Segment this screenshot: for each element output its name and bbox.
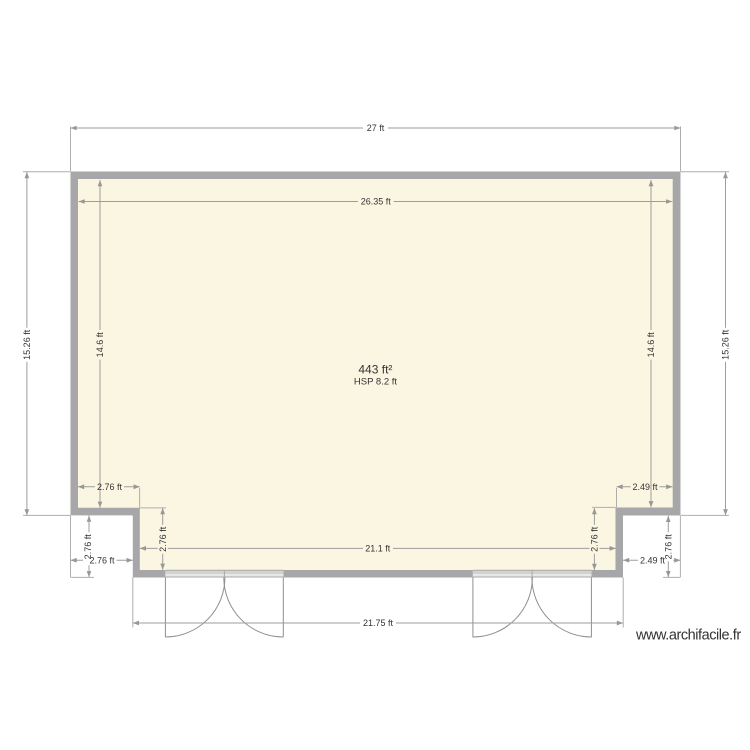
svg-text:27 ft: 27 ft: [367, 123, 385, 133]
svg-text:443 ft²: 443 ft²: [358, 362, 392, 376]
svg-text:14.6 ft: 14.6 ft: [646, 332, 656, 358]
svg-text:2.76 ft: 2.76 ft: [89, 555, 115, 565]
svg-text:2.76 ft: 2.76 ft: [664, 534, 674, 560]
svg-text:2.76 ft: 2.76 ft: [83, 534, 93, 560]
svg-text:2.76 ft: 2.76 ft: [590, 526, 600, 552]
svg-text:2.76 ft: 2.76 ft: [97, 482, 123, 492]
svg-text:21.75 ft: 21.75 ft: [363, 618, 394, 628]
svg-text:HSP 8.2 ft: HSP 8.2 ft: [354, 377, 397, 388]
svg-text:14.6 ft: 14.6 ft: [95, 332, 105, 358]
svg-text:15.26 ft: 15.26 ft: [721, 329, 731, 360]
svg-text:2.49 ft: 2.49 ft: [640, 555, 666, 565]
svg-text:21.1 ft: 21.1 ft: [365, 544, 391, 554]
svg-text:15.26 ft: 15.26 ft: [22, 329, 32, 360]
svg-text:www.archifacile.fr: www.archifacile.fr: [635, 628, 741, 644]
svg-text:2.49 ft: 2.49 ft: [632, 482, 658, 492]
svg-text:26.35 ft: 26.35 ft: [361, 197, 392, 207]
svg-text:2.76 ft: 2.76 ft: [158, 526, 168, 552]
